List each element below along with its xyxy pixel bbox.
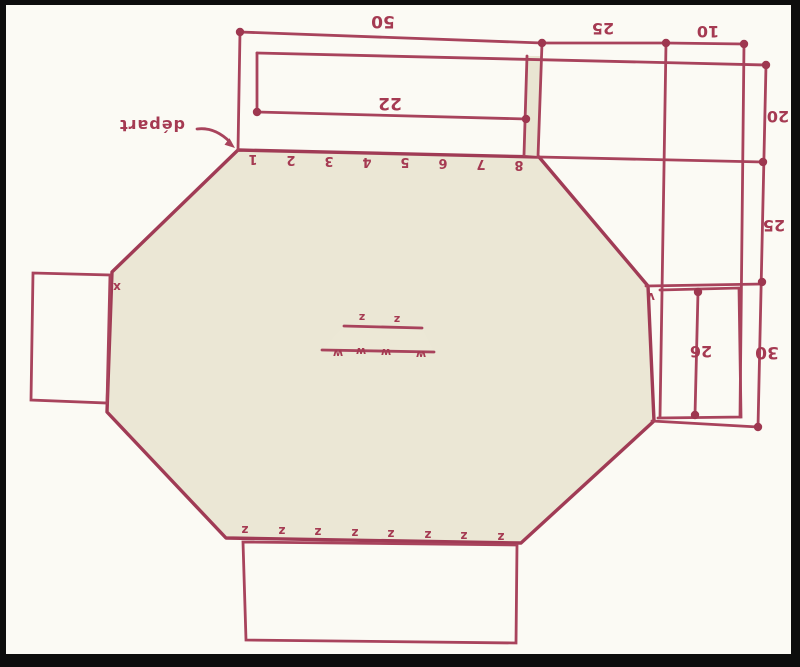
row-number: 2 bbox=[286, 152, 295, 167]
z-mark: z bbox=[460, 529, 467, 543]
start-annotation: départ bbox=[119, 116, 235, 148]
dim-22: 22 bbox=[378, 93, 402, 113]
row-number: 1 bbox=[248, 151, 257, 166]
dim-30: 30 bbox=[755, 342, 779, 362]
dim-26: 26 bbox=[690, 342, 712, 361]
dim-10: 10 bbox=[697, 22, 719, 41]
z-mark: z bbox=[497, 530, 504, 544]
z-mark: z bbox=[241, 523, 248, 537]
dim-25-right: 25 bbox=[763, 216, 785, 235]
dim-25-top: 25 bbox=[592, 19, 614, 38]
row-number: 7 bbox=[476, 156, 485, 171]
left-flap bbox=[31, 273, 110, 403]
z-mark: z bbox=[351, 526, 358, 540]
x-mark-left-edge: x bbox=[113, 280, 121, 294]
v-mark-right-edge: v bbox=[647, 290, 655, 304]
w-mark: w bbox=[381, 346, 391, 359]
row-number: 5 bbox=[400, 154, 409, 169]
row-number: 6 bbox=[438, 155, 447, 170]
z-mark: z bbox=[387, 527, 394, 541]
z-mark: z bbox=[314, 525, 321, 539]
w-mark: w bbox=[333, 347, 343, 360]
photo-frame: départ 50 25 10 22 20 25 30 26 1 2 3 4 5… bbox=[0, 0, 800, 667]
z-mark: z bbox=[359, 311, 365, 324]
z-mark: z bbox=[394, 313, 400, 326]
bottom-flap bbox=[243, 542, 517, 643]
w-mark: w bbox=[416, 348, 426, 361]
z-mark: z bbox=[424, 528, 431, 542]
z-mark: z bbox=[278, 524, 285, 538]
w-mark: w bbox=[356, 345, 366, 358]
dim-20: 20 bbox=[767, 107, 789, 126]
start-arrow bbox=[197, 129, 230, 142]
start-label: départ bbox=[119, 116, 185, 135]
row-number: 4 bbox=[362, 154, 371, 169]
pattern-diagram: départ 50 25 10 22 20 25 30 26 1 2 3 4 5… bbox=[0, 0, 800, 667]
row-number: 8 bbox=[514, 157, 523, 172]
row-number: 3 bbox=[324, 153, 333, 168]
dim-50: 50 bbox=[371, 11, 395, 31]
